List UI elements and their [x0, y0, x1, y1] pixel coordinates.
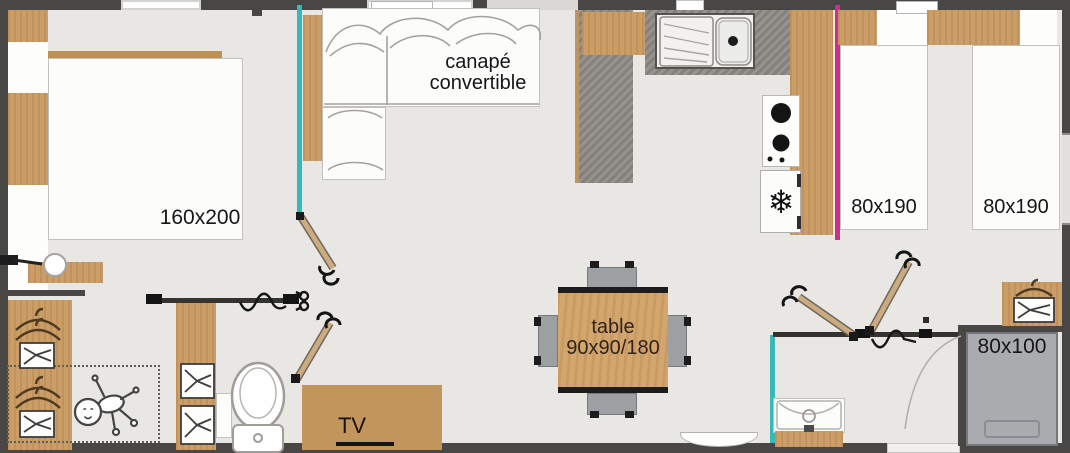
door-pivot-dot	[923, 317, 929, 323]
door-master-bedroom	[296, 212, 338, 284]
partition-wall-teal	[297, 5, 302, 217]
floor-plan: ❄	[0, 0, 1070, 453]
chair-foot	[684, 317, 691, 326]
wall-interior	[7, 290, 85, 296]
small-bed-pillow	[984, 420, 1040, 438]
sliding-door-track	[148, 298, 295, 303]
label-small-bed: 80x100	[966, 336, 1058, 358]
toilet-side-shelf	[216, 393, 232, 438]
label-master-bed: 160x200	[135, 207, 265, 229]
door-frame-mark	[855, 329, 870, 338]
wall-bracket	[0, 255, 18, 265]
entrance-door-opening	[887, 443, 960, 453]
snowflake-icon: ❄	[763, 180, 799, 224]
tv-stand-mark	[336, 442, 394, 446]
chair-foot	[684, 356, 691, 365]
wall-small-room	[958, 325, 1062, 332]
label-twin-bed-left: 80x190	[840, 197, 928, 218]
label-sofa-line1: canapé	[398, 52, 558, 73]
washbasin-vanity	[773, 398, 845, 433]
entrance-door-arc	[905, 336, 961, 429]
chair-foot	[625, 261, 634, 268]
chair	[587, 267, 637, 289]
window-master-bedroom	[121, 0, 201, 10]
chair-foot	[625, 411, 634, 418]
wall-right	[1062, 0, 1070, 453]
sofa-chaise	[322, 107, 386, 180]
baby-cot-area	[7, 365, 160, 443]
window-right-wall	[1062, 133, 1070, 225]
wall-notch	[252, 10, 262, 16]
wall-recess	[877, 10, 927, 45]
wall-recess	[1020, 10, 1057, 45]
cooktop	[762, 95, 800, 167]
table-edge	[558, 387, 668, 393]
sliding-door-stop	[283, 294, 299, 304]
wall-lamp	[43, 253, 67, 277]
wardrobe-small	[1002, 282, 1062, 326]
label-twin-bed-right: 80x190	[972, 197, 1060, 218]
chair-foot	[590, 261, 599, 268]
vanity-base	[775, 431, 843, 447]
chair-foot	[590, 411, 599, 418]
bed-headboard	[48, 51, 222, 58]
chair-foot	[534, 317, 541, 326]
wall-small-room	[958, 325, 966, 446]
headboard-shelf	[927, 10, 1020, 45]
sofa-back-panel	[303, 15, 322, 161]
wardrobe-block	[8, 93, 48, 185]
sliding-door-stop	[146, 294, 162, 304]
toilet	[232, 363, 284, 452]
table-edge	[558, 287, 668, 293]
door-frame-mark	[919, 329, 932, 338]
fridge-handle	[797, 174, 801, 187]
wall-recess	[8, 40, 48, 93]
wardrobe-column	[176, 302, 216, 450]
chair-foot	[534, 356, 541, 365]
door-twin-bedroom	[865, 252, 919, 335]
door-bathroom	[291, 313, 340, 383]
headboard-shelf	[838, 10, 877, 45]
label-table-line1: table	[548, 317, 678, 338]
label-table-line2: 90x90/180	[548, 338, 678, 359]
label-sofa-line2: convertible	[398, 73, 558, 94]
fridge-handle	[797, 216, 801, 229]
wardrobe-block	[8, 10, 48, 42]
kitchen-cabinet	[582, 12, 648, 55]
label-tv: TV	[312, 414, 392, 437]
kitchen-sink	[655, 13, 755, 69]
